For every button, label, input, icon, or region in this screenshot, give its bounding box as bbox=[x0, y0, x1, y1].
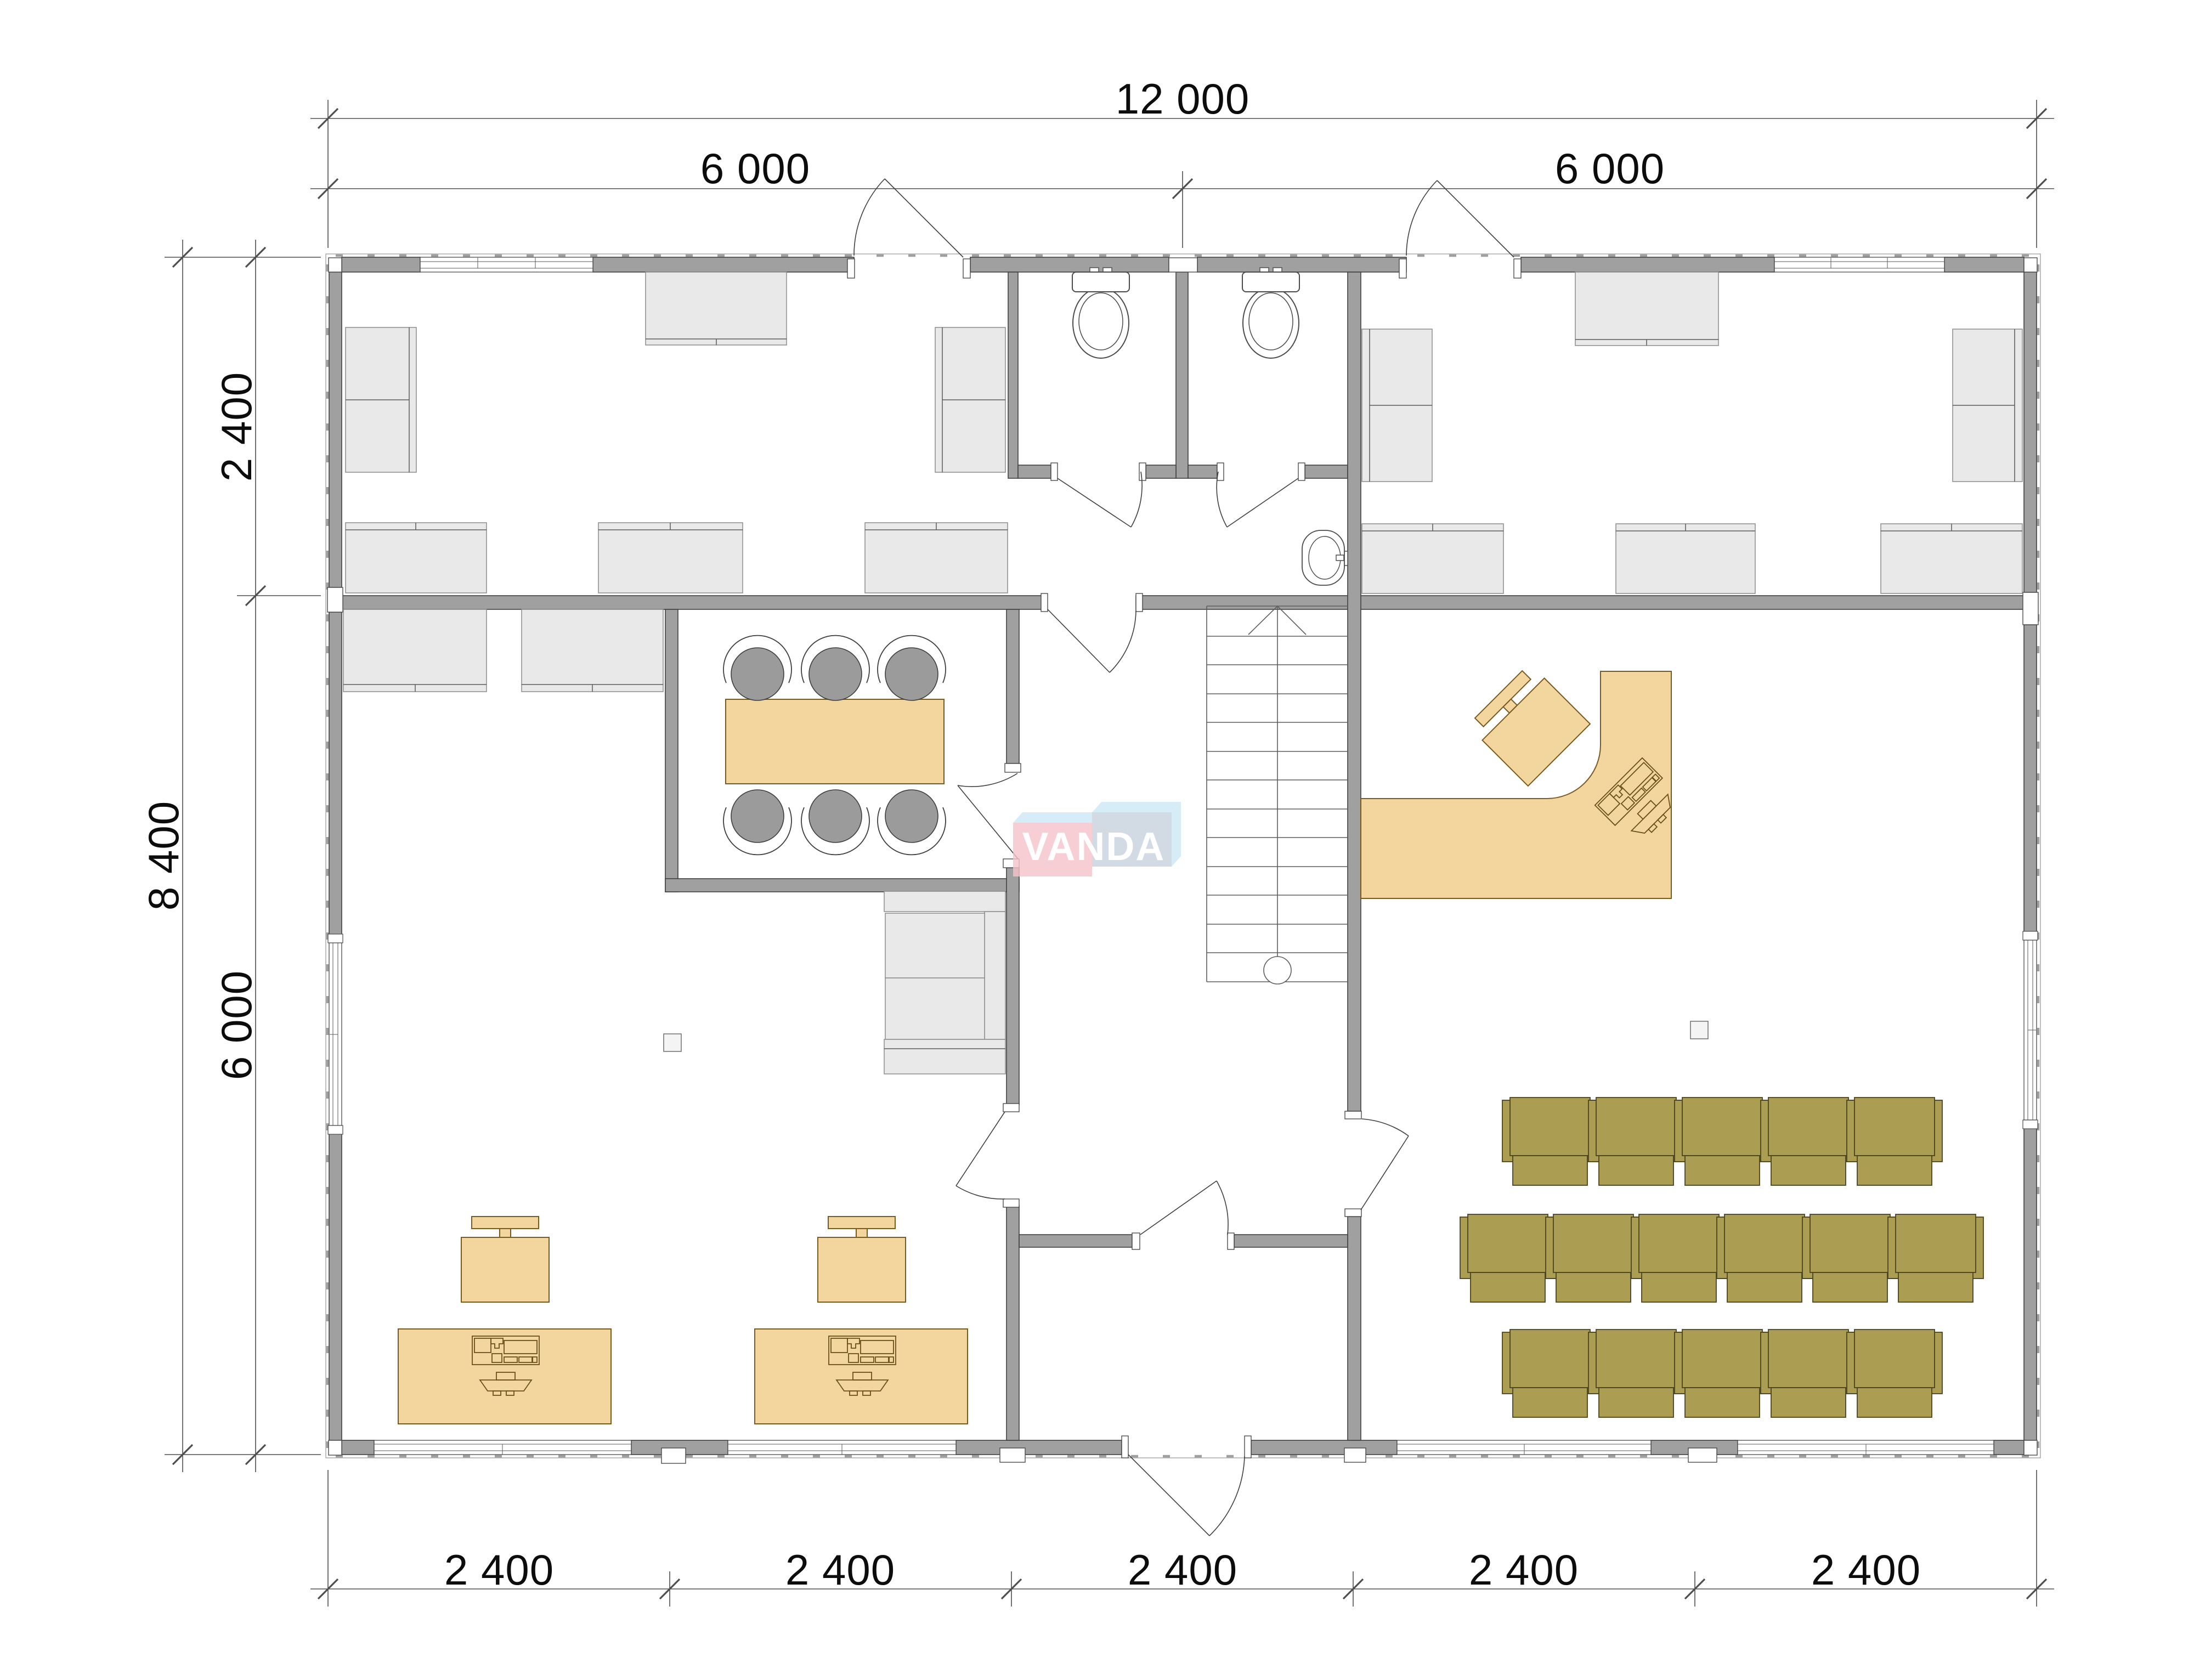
svg-text:8 400: 8 400 bbox=[139, 801, 188, 910]
svg-text:2 400: 2 400 bbox=[444, 1546, 554, 1594]
svg-text:2 400: 2 400 bbox=[1811, 1546, 1921, 1594]
svg-text:6 000: 6 000 bbox=[700, 144, 810, 193]
svg-text:2 400: 2 400 bbox=[1128, 1546, 1237, 1594]
svg-text:VANDA: VANDA bbox=[1022, 825, 1166, 869]
svg-text:2 400: 2 400 bbox=[1469, 1546, 1579, 1594]
svg-text:2 400: 2 400 bbox=[785, 1546, 895, 1594]
svg-text:2 400: 2 400 bbox=[212, 372, 261, 482]
svg-text:6 000: 6 000 bbox=[1555, 144, 1665, 193]
svg-text:12 000: 12 000 bbox=[1116, 75, 1250, 123]
svg-text:6 000: 6 000 bbox=[212, 970, 261, 1080]
